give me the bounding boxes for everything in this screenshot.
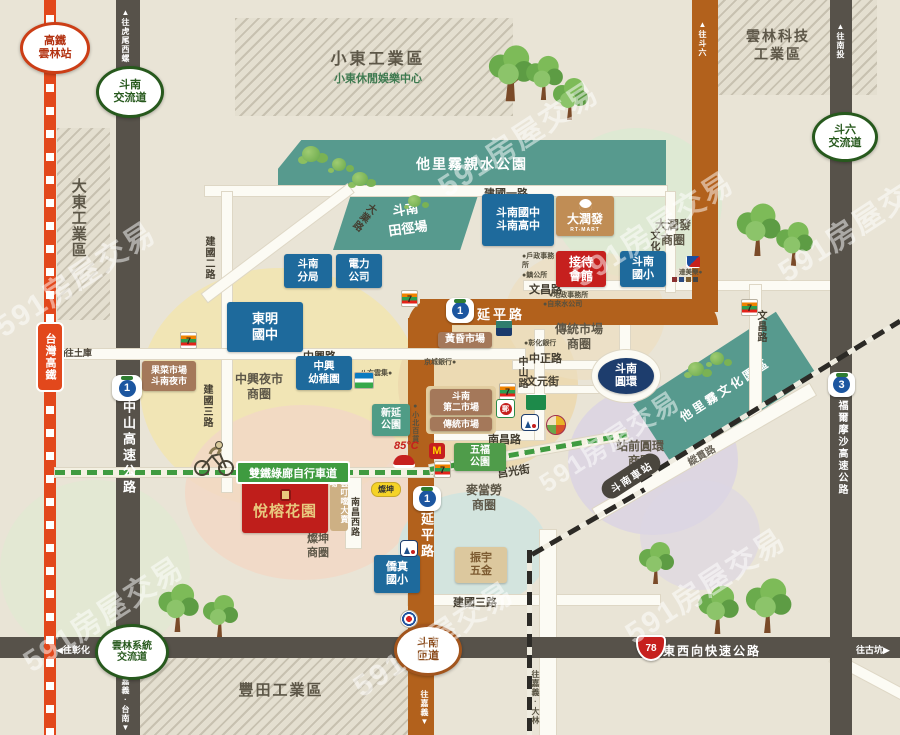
pizza-hut-icon [393,455,415,468]
food-store-icon [546,415,566,435]
mcd-area-label: 麥當勞商圈 [458,483,510,513]
mcdonalds-icon: M [429,443,445,459]
cyclist-illustration [192,438,236,481]
wufu-park: 五福公園 [454,443,506,471]
bush-icon [302,146,320,162]
yunlin-system-interchange-badge: 雲林系統交流道 [95,624,169,680]
dounan-elementary: 斗南國小 [620,251,666,287]
mini-icon [686,277,691,282]
jiayi-dalin-rail-label: 往嘉義·大林 [530,670,541,725]
post-office-icon: 郵 [496,399,515,418]
emblem-dot-icon [411,550,415,554]
emblem-dot-icon [532,424,536,428]
bush-icon [408,195,421,207]
huwei-direction-label: ▲往虎尾西螺 [120,8,131,63]
tree-icon [742,578,794,641]
hwy1-shield-main: 1 [112,375,142,401]
dongming-junior-high: 東明國中 [227,302,303,352]
bush-icon [352,172,368,186]
track-field-label: 斗南 田徑場 [385,196,429,239]
emblem-store-icon [521,414,539,431]
tsannkuen-icon: 燦坤 [371,482,401,497]
yunlin-tech-zone-title: 雲林科技 工業區 [733,28,823,63]
bike-path-label: 雙鐵綠廊自行車道 [236,461,350,484]
wenyuan-label: 文元街 [526,373,559,389]
fengtian-zone-title: 豐田工業區 [226,682,336,701]
changhua-direction-label: ◀往彰化 [56,643,90,656]
rtmart-logo-icon [579,199,592,212]
xinyan-park: 新延公園 [372,404,410,436]
dominos-poi: 達美樂● [679,269,702,277]
dounan-interchange-badge: 斗南交流道 [96,66,164,118]
hwy1-shield-yanping-h: 1 [446,298,474,323]
taliwu-water-park-label: 他里霧親水公園 [416,154,528,174]
zhongzheng-label: 中正路 [529,350,562,366]
dounan-area-map: 他里霧親水公園 斗南 田徑場 他里霧文化園區 小東工業區 [0,0,900,735]
zhongshan-rd-label: 中山路 [514,356,529,389]
zhongshan-hwy-label: 中山高速公路 [119,400,138,496]
jiayi-direction-label: 往嘉義▼ [419,690,430,727]
second-market-group: 斗南第二市場 傳統市場 [426,386,496,434]
power-company: 電力公司 [336,254,382,288]
tree-icon [636,542,676,591]
hwy3-shield: 3 [828,372,855,397]
tree-icon [773,222,815,273]
85c-icon: 85°C [394,440,419,452]
jianguo1-road [205,186,667,196]
evening-market: 黃昏市場 [438,332,492,348]
yuerong-garden-property: 悅榕花園 [242,477,328,533]
dounan-roundabout-badge: 斗南圓環 [598,358,654,394]
mini-poi-icons [672,277,698,282]
land-office-poi: ●地政事務所 [549,292,588,301]
jianguo3b-road [408,595,660,605]
dominos-icon [686,256,700,268]
rtmart-area-label: 大潤發商圈 [650,218,696,248]
formosa-hwy-label: 福爾摩沙高速公路 [834,400,849,496]
jianguo3b-label: 建國三路 [453,594,497,610]
zhongxing-area-label: 中興夜市商圈 [226,372,292,402]
reception-center: 接待會館 [556,251,606,287]
emblem-peak-icon [525,418,531,428]
seven-eleven-icon: 7 [741,299,758,316]
dounan-police-station: 斗南分局 [284,254,332,288]
taiwan-hsr-label: 台灣高鐵 [36,322,64,392]
household-office-poi: ●戶政事務所 [522,253,556,271]
nanchang-w-label: 南昌西路 [349,497,362,537]
yundingdang-store: 雲叮噹大賣場 [330,479,348,531]
bush-icon [710,352,724,365]
jianguo2-label: 建國二路 [201,236,216,280]
second-market: 斗南第二市場 [430,389,492,415]
yuerong-logo-icon [280,489,291,501]
water-company-poi: ●自來水公司 [543,301,582,310]
douliu-interchange-badge: 斗六交流道 [812,112,878,162]
bush-icon [688,362,704,376]
xiaodong-zone-subtitle: 小東休閒娛樂中心 [318,73,438,87]
hwy1-shield-yanping-v: 1 [413,486,441,511]
seven-eleven-icon: 7 [180,332,197,349]
tree-icon [155,583,201,640]
emblem-store-icon [400,540,418,557]
familymart-icon [354,372,374,389]
douliu-direction-label: ▲往斗六 [697,20,708,57]
rtmart-store: 大潤發 RT-MART [556,196,614,236]
mini-icon [679,277,684,282]
hsr-yunlin-station-badge: 高鐵雲林站 [20,22,90,74]
zhongxing-kindergarten: 中興幼稚園 [296,356,352,390]
ctbc-bank-icon [496,320,512,336]
traditional-market: 傳統市場 [430,417,492,431]
yanping-v-label: 延平路 [417,512,436,560]
kingstown-bank-poi: 京城銀行● [424,359,456,368]
jianguo3-label: 建國三路 [199,384,214,428]
mini-icon [693,277,698,282]
dounan-junior-senior-high: 斗南國中斗南高中 [482,194,554,246]
bush-icon [332,158,346,171]
pxmart-icon [526,394,546,410]
xiaobei-store-poi: ●小北百貨 [410,403,419,443]
gukeng-direction-label: 往古坑▶ [856,643,890,656]
national-hwy3-road [830,0,852,735]
mini-icon [672,277,677,282]
south-mid-road [540,530,556,735]
tsannkuen-area-label: 燦坤商圈 [298,533,338,561]
zhenyu-hardware: 振宇五金 [455,547,507,583]
emblem-peak-icon [404,544,410,554]
seven-eleven-icon: 7 [401,290,418,307]
changhua-bank-poi: ●彰化銀行 [524,340,556,349]
dounan-ramp-badge: 斗南匝道 [394,624,462,676]
nantou-direction-label: ▲往南投 [835,22,846,59]
tree-icon [695,585,741,642]
xiaodong-zone-title: 小東工業區 [318,50,438,70]
tree-icon [550,78,590,127]
town-hall-poi: ●鎮公所 [522,272,547,281]
seven-eleven-icon: 7 [499,383,516,400]
dadong-zone-title: 大東工業區 [68,178,87,258]
fruit-market-night-market: 果菜市場斗南夜市 [142,361,196,391]
expressway78-label: 東西向快速公路 [663,642,761,659]
seven-eleven-icon: 7 [434,461,451,478]
qiaozhen-elementary: 僑真國小 [374,555,420,593]
